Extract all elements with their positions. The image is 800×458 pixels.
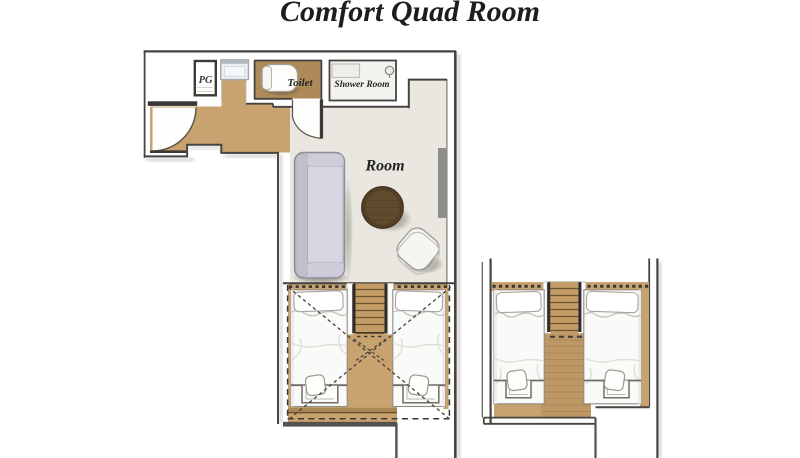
svg-text:Shower Room: Shower Room: [334, 80, 389, 90]
svg-text:Toilet: Toilet: [287, 77, 313, 89]
svg-text:Comfort Quad Room: Comfort Quad Room: [280, 0, 540, 28]
svg-text:Room: Room: [364, 158, 404, 175]
svg-text:PG: PG: [199, 75, 213, 86]
